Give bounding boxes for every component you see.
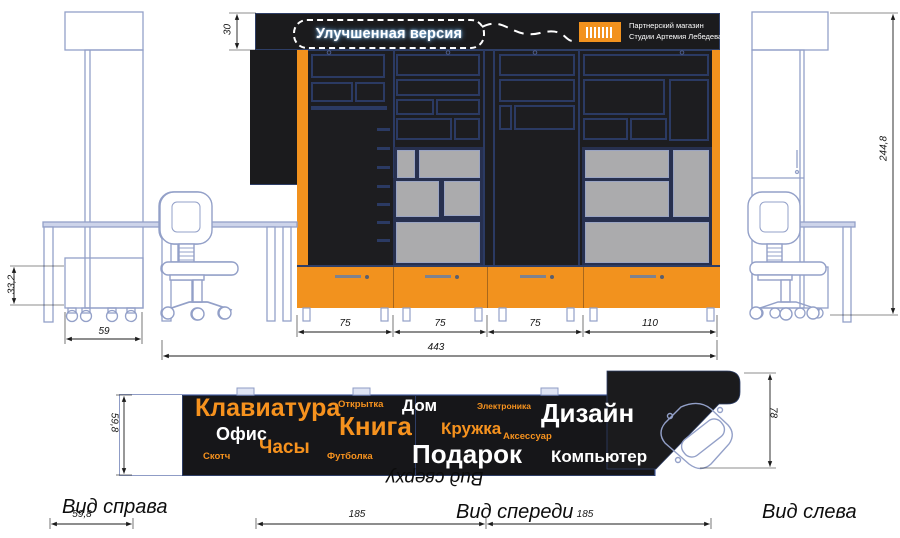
word-keyboard: Клавиатура [195,396,340,421]
view-right-drawing [43,12,161,322]
dim-section-1: 75 [315,318,375,329]
dim-counter-depth: 78 [768,391,779,435]
view-label-left: Вид слева [762,501,857,524]
word-tshirt: Футболка [327,452,373,462]
blueprint-canvas: Улучшенная версия Партнерский магазин Ст… [0,0,900,538]
word-book: Книга [339,413,412,439]
cabinet-top-markers [327,51,684,55]
dim-base-height: 33,2 [7,263,18,307]
dim-side-width: 59 [74,326,134,337]
word-computer: Компьютер [551,448,647,465]
dim-total-width: 443 [406,342,466,353]
dim-section-2: 75 [410,318,470,329]
word-gift: Подарок [412,441,522,467]
word-electronics: Электроника [477,402,531,411]
chair-front-view [160,192,238,320]
dim-front-left-depth: 185 [327,509,387,520]
balloon-leader-dashes [482,24,576,41]
dim-total-height: 244,8 [879,127,890,171]
dim-section-3: 75 [505,318,565,329]
dim-header-height: 30 [223,8,234,52]
dim-top-depth: 59,8 [109,401,120,445]
chair-left-view [748,192,826,320]
word-watch: Часы [259,438,310,457]
view-label-front: Вид спереди [456,501,573,524]
word-tape: Скотч [203,452,230,462]
word-design: Дизайн [541,400,634,426]
view-label-top: Вид сверху [386,466,484,488]
dim-section-4: 110 [620,318,680,329]
word-mug: Кружка [441,420,501,437]
word-postcard: Открытка [338,400,383,410]
view-label-right: Вид справа [62,496,167,519]
